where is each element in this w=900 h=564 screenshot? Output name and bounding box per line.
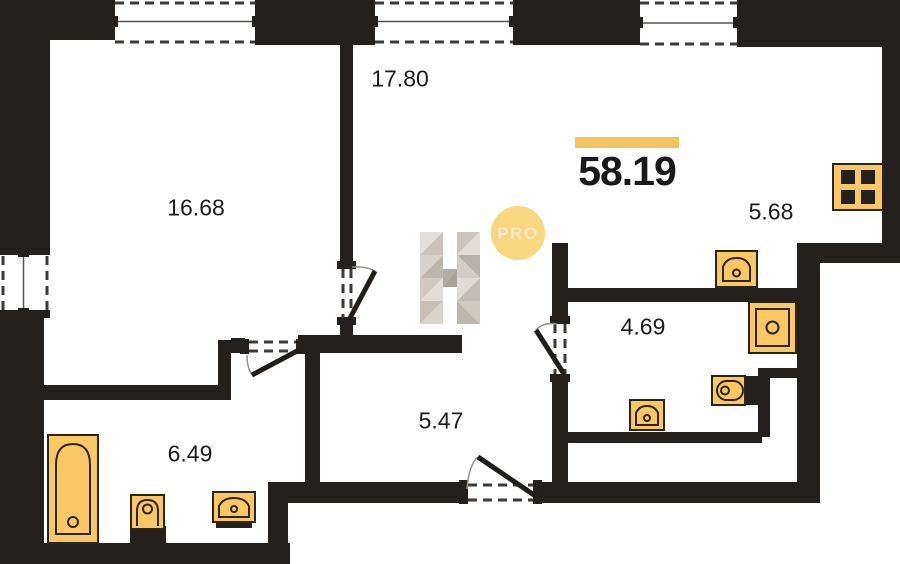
- wall-hall-right-lower: [552, 377, 568, 503]
- door-jamb: [337, 261, 356, 269]
- watermark-pro-text: PRO: [497, 224, 538, 243]
- door-jamb: [550, 316, 570, 324]
- watermark: PRO: [420, 206, 545, 324]
- room-area-label-room-6: 6.49: [168, 441, 213, 468]
- wall-right-upper: [882, 0, 900, 263]
- window-tick: [18, 308, 29, 315]
- kitchen-sink-icon: [716, 251, 757, 287]
- window-top-3: [636, 3, 740, 44]
- door-jamb: [337, 317, 356, 325]
- window-tick: [18, 250, 29, 257]
- bathtub-icon: [48, 435, 98, 543]
- wall-hall-right-upper: [552, 243, 568, 323]
- door-bathroom-2: [536, 316, 570, 382]
- window-tick: [371, 16, 378, 27]
- total-area: 58.19: [567, 137, 687, 195]
- wall-bath2-top: [568, 288, 797, 302]
- toilet-icon: [131, 495, 164, 529]
- window-left: [3, 250, 47, 315]
- door-room-1: [337, 261, 376, 325]
- wall-bath1-divider: [305, 347, 320, 482]
- stove-icon: [833, 164, 883, 210]
- wall-top-pier-2: [513, 0, 640, 45]
- wall-bottom-left: [0, 543, 290, 564]
- wall-divider-upper: [340, 45, 353, 267]
- floor-plan-drawing: PRO: [0, 0, 900, 564]
- window-tick: [111, 16, 118, 27]
- wall-left-lower: [0, 315, 44, 564]
- wall-hall-top: [298, 335, 462, 353]
- wall-right-step: [820, 243, 882, 263]
- door-entry: [459, 457, 542, 504]
- window-top-2: [371, 3, 516, 42]
- wall-hall-bottom: [268, 482, 463, 503]
- wall-left-upper: [0, 0, 50, 250]
- floor-plan: PRO 58.19 16.6817.805.684.695.476.49: [0, 0, 900, 564]
- wall-top-right-block: [737, 0, 900, 47]
- watermark-h-logo: [420, 232, 480, 324]
- window-tick: [252, 16, 259, 27]
- shower-icon: [749, 302, 796, 353]
- door-jamb: [459, 480, 468, 504]
- wall-right-mid: [797, 243, 820, 503]
- toilet-icon-2: [712, 376, 765, 405]
- total-area-value: 58.19: [567, 148, 687, 195]
- wall-step-bottom: [268, 482, 288, 543]
- watermark-pro-badge: PRO: [491, 206, 545, 260]
- window-tick: [636, 17, 643, 28]
- door-bathroom-1: [240, 339, 305, 376]
- room-area-label-room-5: 5.47: [419, 408, 464, 435]
- door-jamb: [533, 480, 542, 504]
- wall-bath2-bottom: [568, 432, 762, 443]
- wall-jog: [218, 340, 231, 400]
- wall-bottom-right: [537, 482, 820, 503]
- room-area-label-room-2: 17.80: [371, 66, 429, 93]
- doors: [240, 261, 570, 504]
- wall-room1-bottom: [44, 385, 230, 400]
- door-jamb: [550, 374, 570, 382]
- wash-basin-icon: [213, 492, 255, 522]
- room-area-label-room-3: 5.68: [749, 199, 794, 226]
- wall-top-pier-1: [255, 0, 375, 45]
- room-area-label-room-1: 16.68: [167, 195, 225, 222]
- room-area-label-room-4: 4.69: [621, 314, 666, 341]
- window-tick: [733, 17, 740, 28]
- wash-basin-icon-2: [630, 400, 664, 430]
- total-area-accent-bar: [575, 137, 679, 148]
- window-tick: [509, 16, 516, 27]
- door-jamb: [240, 339, 249, 354]
- window-top-1: [111, 3, 259, 42]
